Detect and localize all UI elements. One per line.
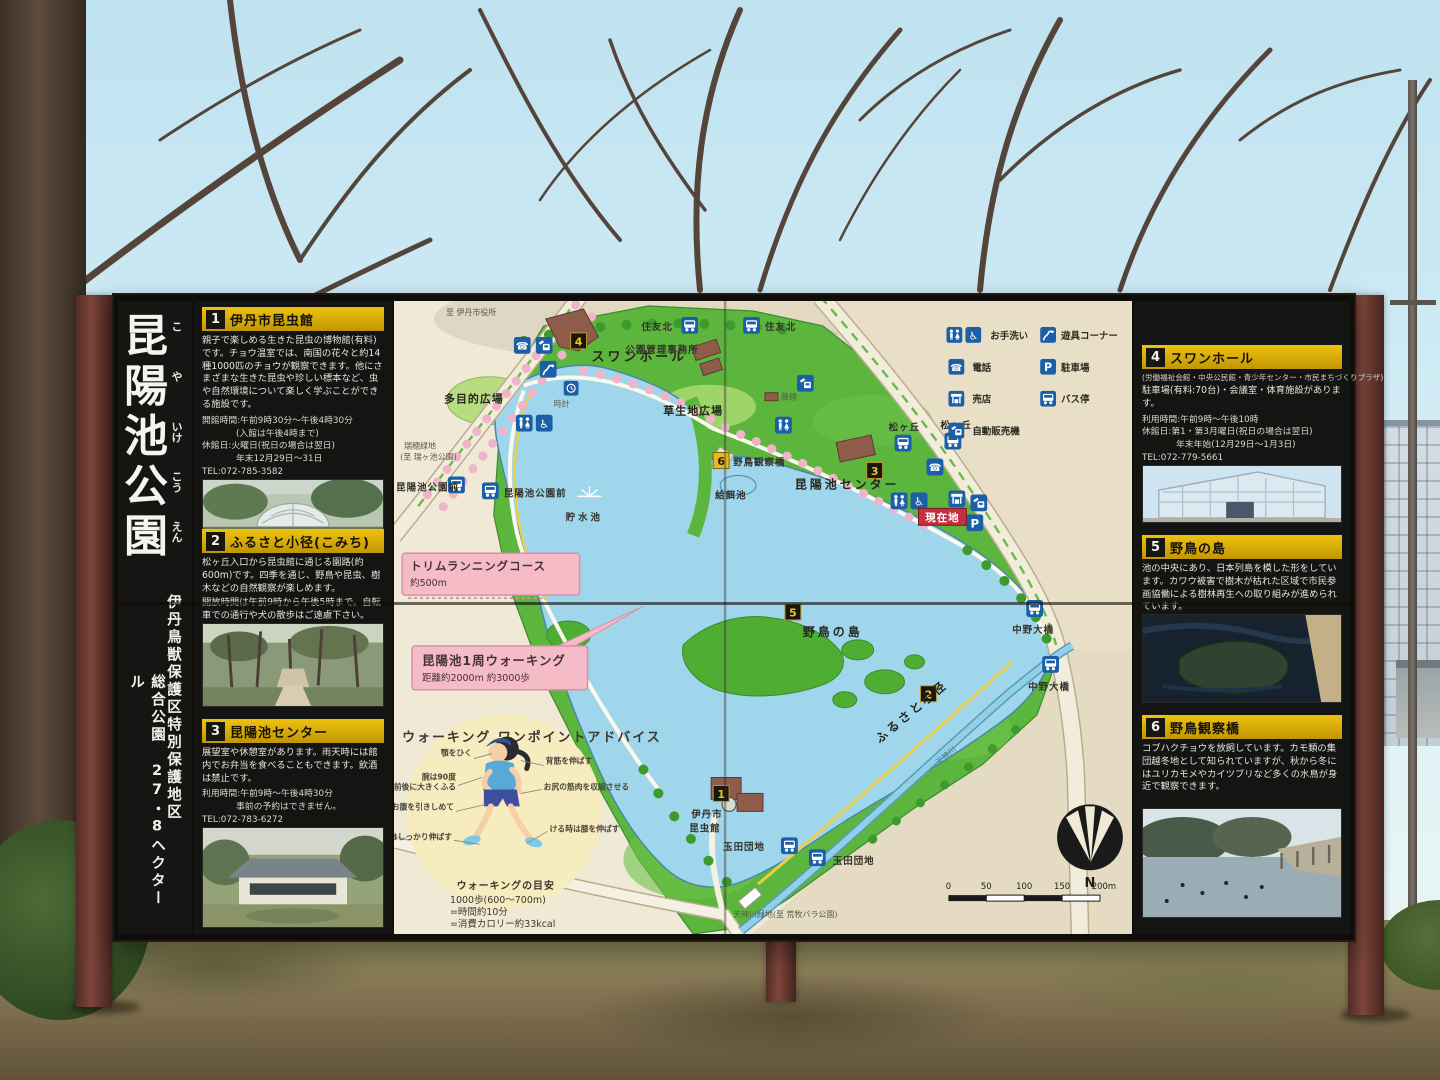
walking-guide-line: =消費カロリー約33kcal: [450, 918, 555, 930]
panel-number: 6: [1146, 718, 1165, 737]
panel-info: 開館時間:午前9時30分〜午後4時30分 (入館は午後4時まで) 休館日:火曜日…: [202, 415, 384, 479]
panel-header: 6 野鳥観察橋: [1142, 715, 1342, 739]
panel-number: 4: [1146, 348, 1165, 367]
panel-header: 4 スワンホール: [1142, 345, 1342, 369]
clock-icon: [564, 381, 579, 396]
nakano-ohashi-label: 中野大橋: [1012, 624, 1054, 636]
parking-icon: [966, 514, 983, 531]
vending-icon: [536, 337, 553, 354]
info-panel-insect-museum: 1 伊丹市昆虫館 親子で楽しめる生きた昆虫の博物館(有料)です。チョウ温室では、…: [194, 301, 392, 523]
tip-arms: 前後に大きくふる: [394, 781, 456, 791]
park-map-panel: ☎ ♿ P: [394, 301, 1132, 934]
park-sign-photo: 昆こ 陽や 池いけ 公こう 園えん 伊丹鳥獣保護区特別保護地区 総合公園 27・…: [0, 0, 1440, 1080]
toilet-icon: [516, 415, 533, 432]
bird-island-label: 野鳥の島: [803, 624, 863, 639]
legend-phone: 電話: [972, 362, 991, 374]
tip-arms: 腕は90度: [421, 771, 456, 781]
bus-stop-icon: [743, 317, 760, 334]
tip-kick: ける時は膝を伸ばす: [550, 823, 620, 833]
panel-body: コブハクチョウを放飼しています。カモ類の集団越冬地として知られていますが、秋から…: [1142, 743, 1342, 794]
svg-text:トリムランニングコース: トリムランニングコース: [410, 559, 546, 573]
tel-line: TEL:072-783-6272: [202, 814, 384, 827]
sign-board: 昆こ 陽や 池いけ 公こう 園えん 伊丹鳥獣保護区特別保護地区 総合公園 27・…: [112, 293, 1356, 942]
svg-text:5: 5: [789, 607, 797, 620]
toilet-icon: [946, 327, 962, 343]
phone-icon: [514, 337, 531, 354]
mizuho-label: (至 瑞ヶ池公園): [400, 451, 457, 461]
tenjin-ryokuchi-label: 天神川緑地(至 荒牧バラ公園): [733, 909, 837, 919]
badge-5: 5: [785, 604, 801, 620]
tel-line: TEL:072-779-5661: [1142, 452, 1342, 465]
panel-title: 昆陽池センター: [230, 722, 328, 741]
reservation-note: 事前の予約はできません。: [202, 801, 384, 814]
tree-trunk: [0, 0, 86, 950]
svg-text:0: 0: [946, 881, 951, 891]
title-char: 池: [124, 415, 168, 459]
title-furigana: えん: [168, 521, 184, 543]
bus-stop-icon: [1040, 391, 1056, 407]
tip-chin: 顎をひく: [441, 749, 472, 758]
playground-icon: [540, 361, 557, 378]
tip-belly: お腹を引きしめて: [394, 801, 454, 811]
panel-title: ふるさと小径(こみち): [230, 532, 370, 551]
playground-icon: [1040, 327, 1056, 343]
legend-playground: 遊具コーナー: [1061, 330, 1118, 342]
current-location-badge: 現在地: [919, 508, 967, 525]
title-furigana: や: [168, 371, 184, 382]
right-info-column: 4 スワンホール (労働福祉会館・中央公民館・青少年センター・市民まちづくりプラ…: [1134, 301, 1350, 934]
nakano-ohashi-label: 中野大橋: [1028, 681, 1070, 693]
svg-text:50: 50: [981, 881, 992, 891]
utility-pole: [1408, 80, 1417, 940]
legend-bus: バス停: [1061, 394, 1090, 406]
sign-post-left: [76, 295, 112, 1007]
title-char: 陽: [124, 365, 168, 409]
panel-info: 利用時間:午前9時〜午後4時30分 事前の予約はできません。 TEL:072-7…: [202, 788, 384, 826]
title-furigana: こ: [168, 321, 184, 332]
fujidana-structure: [765, 393, 778, 401]
hours-line: 利用時間:午前9時〜午後4時30分: [202, 788, 384, 801]
fujidana-label: 藤棚: [781, 392, 797, 402]
badge-1: 1: [713, 785, 729, 801]
insect-museum-label: 伊丹市: [690, 808, 722, 820]
toilet-icon: [891, 492, 908, 509]
panel-body: 親子で楽しめる生きた昆虫の博物館(有料)です。チョウ温室では、南国の花々と約14…: [202, 335, 384, 412]
walking-guide-line: 1000歩(600〜700m): [450, 894, 546, 906]
svg-text:現在地: 現在地: [925, 511, 959, 524]
panel-body: 松ヶ丘入口から昆虫館に通じる園路(約600m)です。四季を通じ、野鳥や昆虫、樹木…: [202, 557, 384, 595]
panel-number: 1: [206, 310, 225, 329]
insect-museum-building: [737, 793, 763, 811]
ground: [0, 920, 1440, 1080]
svg-text:3: 3: [871, 465, 879, 478]
svg-text:昆陽池1周ウォーキング: 昆陽池1周ウォーキング: [422, 653, 566, 668]
panel-number: 2: [206, 532, 225, 551]
shop-icon: [948, 391, 964, 407]
svg-text:距離約2000m 約3000歩: 距離約2000m 約3000歩: [422, 672, 530, 684]
toilet-icon: [775, 417, 792, 434]
reservoir-label: 貯水池: [566, 511, 603, 523]
info-panel-swan-hall: 4 スワンホール (労働福祉会館・中央公民館・青少年センター・市民まちづくりプラ…: [1134, 339, 1350, 529]
panel-photo-komichi-path: [202, 623, 384, 707]
legend-toilet: お手洗い: [990, 330, 1028, 342]
title-char: 昆: [124, 315, 168, 359]
hours-line: 利用時間:午前9時〜午後10時: [1142, 414, 1342, 427]
closed-line: 休館日:第1・第3月曜日(祝日の場合は翌日): [1142, 426, 1342, 439]
wheelchair-icon: [965, 327, 981, 343]
title-panel: 昆こ 陽や 池いけ 公こう 園えん 伊丹鳥獣保護区特別保護地区 総合公園 27・…: [118, 301, 192, 934]
board-seam: [114, 602, 1354, 605]
wheelchair-icon: [536, 415, 553, 432]
matsugaoka-label: 松ヶ丘: [889, 422, 920, 434]
konyoike-center-label: 昆陽池センター: [795, 476, 900, 491]
phone-icon: [948, 359, 964, 375]
panel-photo-pond-birds: [1142, 808, 1342, 918]
panel-subtitle: (労働福祉会館・中央公民館・青少年センター・市民まちづくりプラザ): [1142, 372, 1342, 383]
tamada-danchi-label: 玉田団地: [833, 855, 875, 867]
title-furigana: こう: [168, 471, 184, 493]
trim-course-callout: トリムランニングコース 約500m: [402, 553, 579, 598]
bus-stop-icon: [1042, 656, 1059, 673]
left-info-column: 1 伊丹市昆虫館 親子で楽しめる生きた昆虫の博物館(有料)です。チョウ温室では、…: [194, 301, 392, 934]
panel-title: スワンホール: [1170, 348, 1254, 367]
mizuho-label: 瑞穂緑地: [404, 441, 436, 451]
panel-title: 伊丹市昆虫館: [230, 310, 314, 329]
panel-info: 利用時間:午前9時〜午後10時 休館日:第1・第3月曜日(祝日の場合は翌日) 年…: [1142, 414, 1342, 465]
badge-6: 6: [713, 453, 729, 469]
closed-note: 年末12月29日〜31日: [202, 453, 384, 466]
feeding-pond-label: 給餌池: [715, 489, 746, 501]
legend-shop: 売店: [972, 394, 991, 406]
title-char: 園: [124, 515, 168, 559]
vending-icon: [797, 375, 814, 392]
koenmae-label: 昆陽池公園前: [396, 481, 459, 493]
panel-photo-center-building: [202, 827, 384, 928]
info-panel-bird-island: 5 野鳥の島 池の中央にあり、日本列島を模した形をしています。カワウ被害で樹木が…: [1134, 529, 1350, 709]
clock-label: 時計: [554, 399, 570, 409]
park-map: ☎ ♿ P: [394, 301, 1132, 934]
sumitomo-kita-label: 住友北: [641, 321, 672, 333]
phone-icon: [926, 459, 943, 476]
tip-legs: 足はしっかり伸ばす: [394, 831, 452, 841]
bus-stop-icon: [809, 849, 826, 866]
tip-back: 背筋を伸ばす: [546, 756, 593, 766]
hours-line: 開館時間:午前9時30分〜午後4時30分: [202, 415, 384, 428]
wheelchair-icon: [911, 492, 928, 509]
insect-museum-label: 昆虫館: [689, 822, 720, 834]
closed-note: 年末年始(12月29日〜1月3日): [1142, 439, 1342, 452]
to-city-hall-label: 至 伊丹市役所: [446, 307, 496, 317]
park-size-text: 総合公園 27・8ヘクタール: [126, 674, 168, 924]
title-char: 公: [124, 465, 168, 509]
background-house: [1396, 660, 1440, 738]
walking-guide-title: ウォーキングの目安: [457, 879, 555, 892]
utility-pole-crossarm: [1390, 300, 1436, 305]
koenmae-label: 昆陽池公園前: [504, 487, 567, 499]
tamada-danchi-label: 玉田団地: [723, 841, 765, 853]
shop-icon: [948, 490, 965, 507]
legend-vending: 自動販売機: [972, 426, 1020, 438]
svg-text:4: 4: [575, 335, 583, 348]
panel-body: 駐車場(有料:70台)・会議室・体育施設があります。: [1142, 385, 1342, 411]
hours-note: (入館は午後4時まで): [202, 428, 384, 441]
panel-body: 池の中央にあり、日本列島を模した形をしています。カワウ被害で樹木が枯れた区域で市…: [1142, 563, 1342, 614]
parking-icon: [1040, 359, 1056, 375]
panel-header: 2 ふるさと小径(こみち): [202, 529, 384, 553]
bus-stop-icon: [895, 435, 912, 452]
badge-4: 4: [571, 333, 587, 349]
svg-text:N: N: [1085, 876, 1096, 891]
svg-text:1: 1: [717, 788, 725, 801]
vending-icon: [970, 494, 987, 511]
bus-stop-icon: [482, 482, 499, 499]
panel-header: 5 野鳥の島: [1142, 535, 1342, 559]
park-office-label: 公園管理事務所: [625, 344, 698, 356]
svg-text:150: 150: [1054, 881, 1070, 891]
panel-photo-bird-island-aerial: [1142, 614, 1342, 703]
closed-line: 休館日:火曜日(祝日の場合は翌日): [202, 440, 384, 453]
sumitomo-kita-label: 住友北: [765, 321, 796, 333]
panel-header: 3 昆陽池センター: [202, 719, 384, 743]
svg-text:100: 100: [1016, 881, 1032, 891]
panel-title: 野鳥の島: [1170, 538, 1226, 557]
panel-photo-swan-hall: [1142, 465, 1342, 523]
panel-number: 5: [1146, 538, 1165, 557]
svg-text:約500m: 約500m: [410, 577, 447, 589]
panel-title: 野鳥観察橋: [1170, 718, 1240, 737]
panel-body: 展望室や休憩室があります。雨天時には館内でお弁当を食べることもできます。飲酒は禁…: [202, 747, 384, 785]
panel-header: 1 伊丹市昆虫館: [202, 307, 384, 331]
legend-parking: 駐車場: [1061, 362, 1090, 374]
svg-text:ウォーキング ワンポイントアドバイス: ウォーキング ワンポイントアドバイス: [402, 730, 662, 746]
grass-plaza-label: 草生地広場: [663, 404, 723, 418]
bus-stop-icon: [781, 837, 798, 854]
tip-hips: お尻の筋肉を収縮させる: [544, 781, 629, 791]
bus-stop-icon: [681, 317, 698, 334]
badge-3: 3: [867, 462, 883, 478]
info-panel-furusato-komichi: 2 ふるさと小径(こみち) 松ヶ丘入口から昆虫館に通じる園路(約600m)です。…: [194, 523, 392, 713]
bird-bridge-label: 野鳥観察橋: [733, 456, 785, 468]
vending-icon: [948, 423, 964, 439]
tel-line: TEL:072-785-3582: [202, 466, 384, 479]
park-title: 昆こ 陽や 池いけ 公こう 園えん: [124, 315, 184, 559]
info-panel-konyoike-center: 3 昆陽池センター 展望室や休憩室があります。雨天時には館内でお弁当を食べること…: [194, 713, 392, 934]
info-panel-bird-bridge: 6 野鳥観察橋 コブハクチョウを放飼しています。カモ類の集団越冬地として知られて…: [1134, 709, 1350, 924]
title-furigana: いけ: [168, 421, 184, 443]
multipurpose-plaza-label: 多目的広場: [444, 392, 504, 406]
walking-guide-line: =時間約10分: [450, 906, 508, 918]
panel-number: 3: [206, 722, 225, 741]
